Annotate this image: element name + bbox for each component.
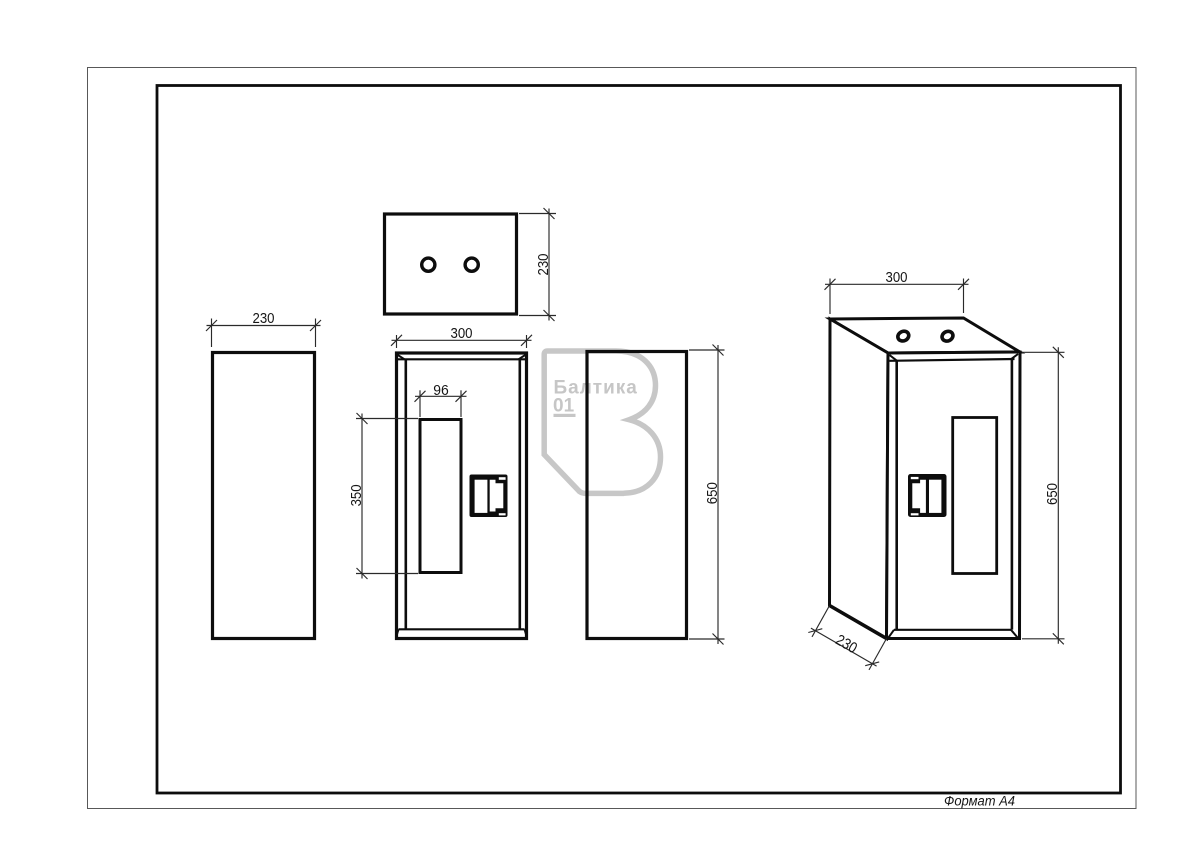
svg-text:230: 230 (253, 310, 275, 327)
svg-text:300: 300 (886, 269, 908, 286)
svg-text:650: 650 (1044, 483, 1061, 505)
svg-text:Формат А4: Формат А4 (944, 793, 1015, 808)
svg-text:96: 96 (433, 382, 449, 399)
svg-text:230: 230 (535, 254, 552, 276)
svg-text:230: 230 (832, 631, 860, 657)
svg-text:01: 01 (553, 396, 575, 417)
svg-text:300: 300 (451, 325, 473, 342)
svg-text:350: 350 (348, 484, 365, 506)
svg-text:650: 650 (704, 482, 721, 504)
